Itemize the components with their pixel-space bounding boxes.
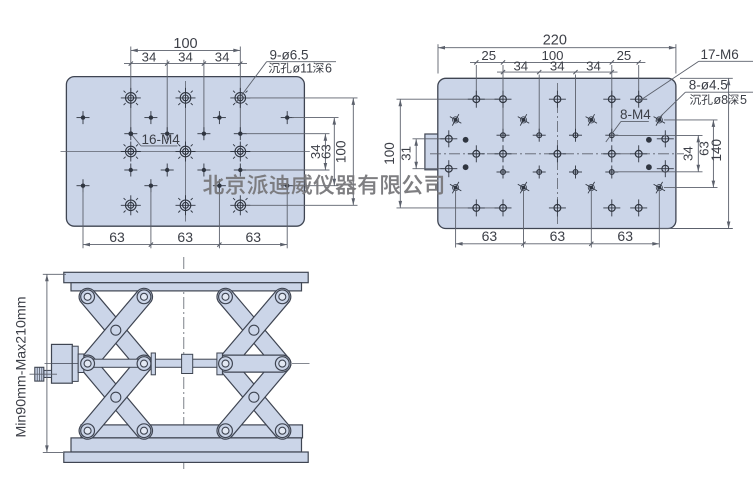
- svg-text:140: 140: [709, 139, 724, 162]
- svg-text:8-M4: 8-M4: [620, 107, 651, 122]
- svg-text:63: 63: [246, 229, 262, 245]
- svg-text:100: 100: [382, 142, 397, 165]
- svg-text:8-ø4.5: 8-ø4.5: [689, 78, 728, 93]
- svg-text:34: 34: [586, 58, 601, 73]
- svg-text:31: 31: [399, 146, 414, 161]
- svg-text:9-ø6.5: 9-ø6.5: [270, 47, 309, 62]
- svg-text:25: 25: [481, 48, 496, 63]
- svg-text:34: 34: [142, 49, 157, 64]
- svg-text:16-M4: 16-M4: [142, 132, 181, 147]
- svg-text:34: 34: [513, 58, 528, 73]
- svg-text:6: 6: [325, 61, 332, 75]
- svg-text:34: 34: [680, 146, 695, 161]
- svg-text:17-M6: 17-M6: [701, 47, 739, 62]
- svg-text:63: 63: [617, 228, 633, 244]
- svg-text:5: 5: [740, 93, 747, 107]
- svg-text:220: 220: [543, 33, 567, 49]
- svg-text:63: 63: [319, 144, 334, 159]
- svg-text:ø11: ø11: [293, 61, 314, 75]
- svg-text:ø8: ø8: [714, 93, 729, 107]
- svg-text:63: 63: [550, 228, 566, 244]
- svg-text:Min90mm-Max210mm: Min90mm-Max210mm: [13, 296, 29, 437]
- svg-text:34: 34: [215, 49, 230, 64]
- svg-text:34: 34: [550, 58, 565, 73]
- svg-text:34: 34: [178, 49, 193, 64]
- svg-text:25: 25: [617, 48, 632, 63]
- svg-text:63: 63: [177, 229, 193, 245]
- svg-text:100: 100: [334, 141, 349, 164]
- svg-text:63: 63: [482, 228, 498, 244]
- svg-text:63: 63: [109, 229, 125, 245]
